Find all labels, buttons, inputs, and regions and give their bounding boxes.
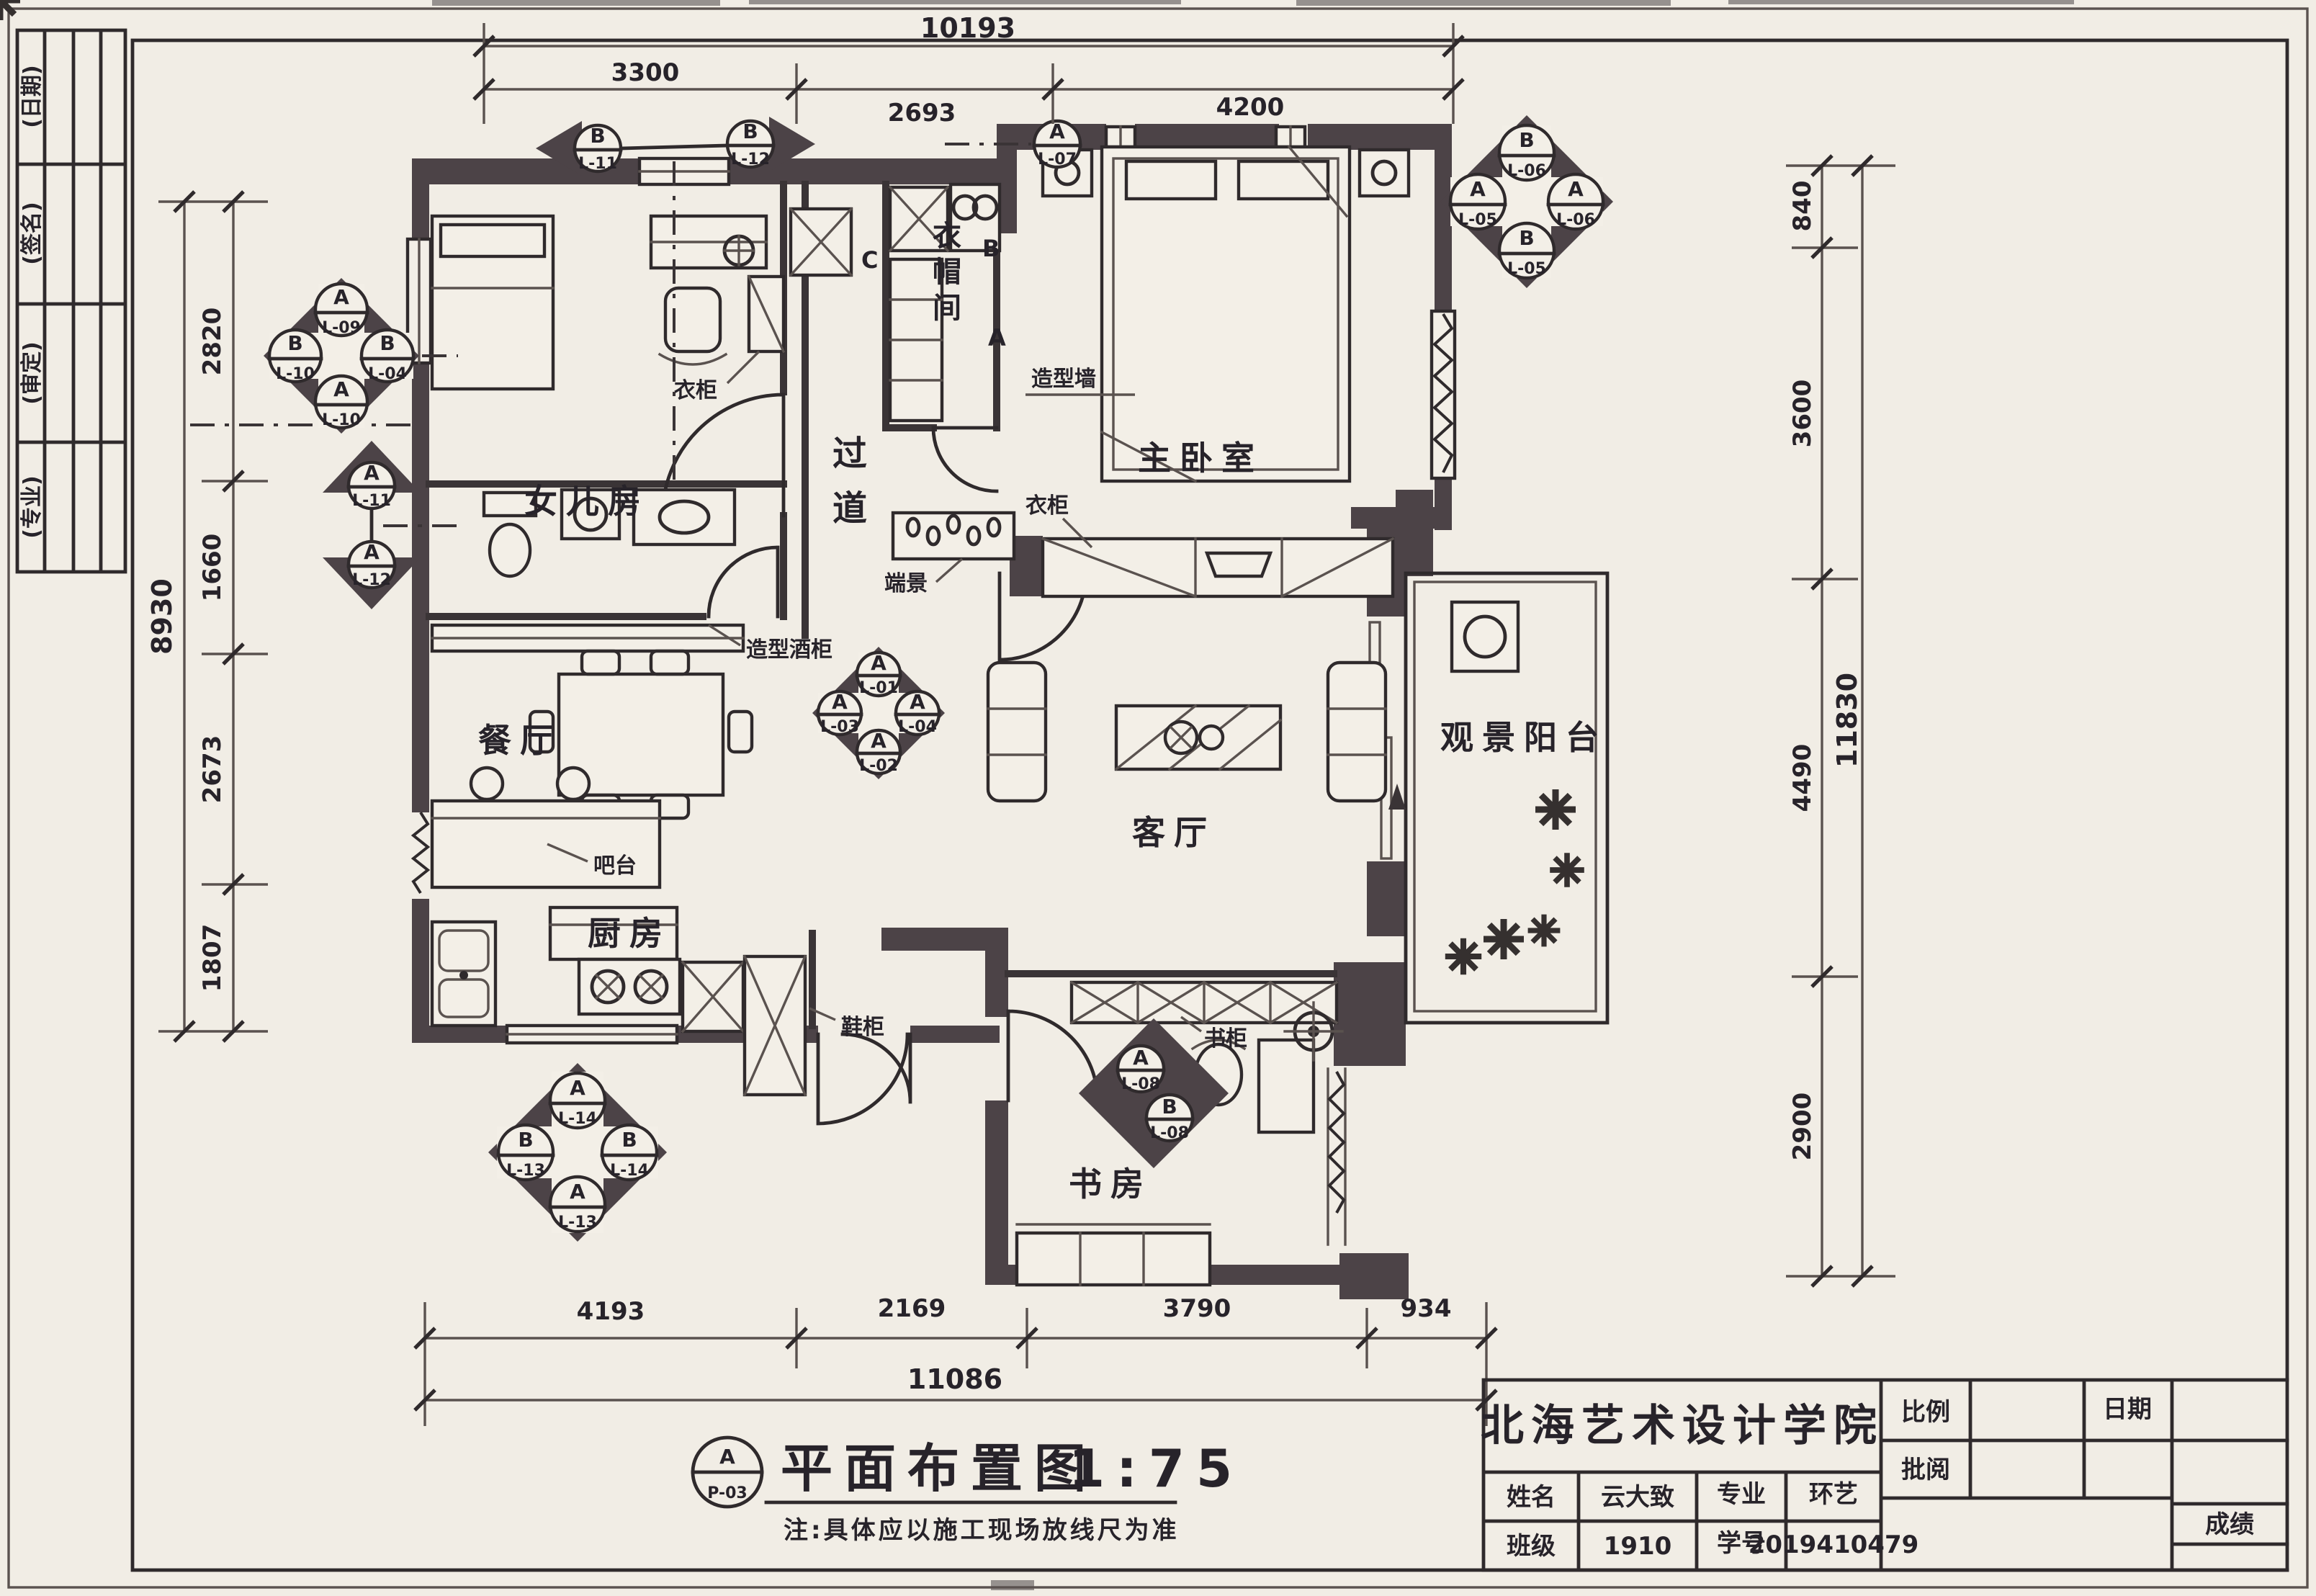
svg-text:批阅: 批阅 [1901,1456,1950,1484]
svg-text:A: A [333,285,349,309]
svg-text:L-02: L-02 [859,757,898,775]
marker-top-center: A L-07 [1034,120,1080,169]
room-dining: 餐厅 [478,721,562,760]
scanned-floor-plan-sheet: (日期) (签名) (审定) (专业) [0,0,2316,1596]
svg-text:3300: 3300 [611,58,680,87]
svg-text:专业: 专业 [1717,1480,1766,1509]
room-balcony: 观景阳台 [1440,718,1607,757]
svg-text:2169: 2169 [878,1294,946,1323]
room-living: 客厅 [1132,813,1216,852]
ann-shoe-cabinet: 鞋柜 [841,1015,884,1040]
drawing-scale: 1:75 [1069,1438,1244,1499]
ann-feature-wall: 造型墙 [1031,367,1096,392]
plant-icon [0,0,20,20]
floor-plan-drawing: (日期) (签名) (审定) (专业) [0,0,2316,1596]
svg-text:4490: 4490 [1788,744,1817,812]
svg-text:L-10: L-10 [322,411,361,429]
svg-text:L-12: L-12 [731,151,770,169]
tv-tray [1207,553,1270,576]
room-kitchen: 厨房 [588,914,671,953]
svg-text:云大致: 云大致 [1601,1483,1674,1512]
svg-text:L-05: L-05 [1507,260,1546,278]
svg-text:934: 934 [1401,1294,1452,1323]
svg-text:L-08: L-08 [1121,1075,1160,1093]
strip-row-date: (日期) [19,65,45,127]
svg-text:A: A [364,461,380,485]
svg-text:A: A [333,377,349,401]
svg-text:A: A [719,1445,735,1469]
svg-text:P-03: P-03 [707,1484,747,1502]
svg-text:A: A [1470,177,1486,201]
svg-text:4193: 4193 [577,1297,645,1326]
section-letter-b: B [982,235,1000,262]
svg-text:成绩: 成绩 [2205,1510,2254,1539]
svg-text:3600: 3600 [1788,380,1817,448]
svg-text:4200: 4200 [1216,93,1285,122]
drawing-note: 注:具体应以施工现场放线尺为准 [784,1516,1180,1545]
svg-text:2820: 2820 [198,308,227,376]
marker-cluster-center: A L-01 A L-03 A L-04 A L-02 [812,647,945,779]
svg-text:1660: 1660 [198,534,227,602]
strip-row-check: (审定) [19,341,45,404]
svg-text:L-04: L-04 [368,365,407,383]
svg-text:2019410479: 2019410479 [1749,1530,1919,1559]
svg-text:10193: 10193 [920,12,1015,44]
marker-cluster-bottom-left: A L-14 B L-13 B L-14 A L-13 [488,1063,667,1242]
svg-text:1807: 1807 [198,924,227,992]
nightstand [1360,150,1409,196]
svg-text:B: B [1162,1095,1177,1118]
svg-text:A: A [364,540,380,564]
drawing-title-group: A P-03 平面布置图 1:75 注:具体应以施工现场放线尺为准 [693,1438,1244,1545]
svg-text:班级: 班级 [1507,1532,1556,1561]
ann-wardrobe-master: 衣柜 [1025,493,1069,519]
daughter-room-furniture [432,209,851,389]
svg-text:比例: 比例 [1901,1398,1950,1427]
svg-text:L-13: L-13 [506,1162,545,1180]
ann-bookcase: 书柜 [1204,1026,1247,1052]
svg-text:B: B [621,1128,637,1152]
svg-text:2900: 2900 [1788,1093,1817,1161]
svg-text:环艺: 环艺 [1809,1480,1858,1509]
svg-text:11830: 11830 [1831,673,1863,768]
svg-text:8930: 8930 [146,578,178,655]
study-desk [1259,1040,1314,1132]
svg-text:B: B [1519,128,1534,152]
svg-text:3790: 3790 [1163,1294,1231,1323]
svg-text:L-06: L-06 [1507,162,1546,180]
room-master: 主卧室 [1138,439,1263,478]
spring-window-kitchen [413,812,428,893]
room-study: 书房 [1069,1165,1152,1203]
svg-text:L-11: L-11 [578,155,617,173]
ann-bar: 吧台 [593,853,637,879]
svg-text:A: A [1568,177,1584,201]
svg-text:B: B [1519,226,1534,250]
svg-text:L-05: L-05 [1458,211,1497,229]
strip-row-major: (专业) [19,475,45,538]
svg-text:日期: 日期 [2103,1395,2152,1424]
svg-text:A: A [910,690,925,714]
svg-text:L-14: L-14 [610,1162,649,1180]
svg-text:2673: 2673 [198,735,227,804]
svg-text:L-04: L-04 [898,718,937,736]
room-daughter: 女儿房 [524,482,650,521]
svg-text:L-13: L-13 [558,1214,597,1232]
end-view-cabinet [893,513,1014,559]
svg-text:B: B [590,124,605,148]
svg-text:A: A [832,690,848,714]
bar-stool [557,768,589,799]
ann-end-view: 端景 [884,571,928,596]
svg-text:A: A [1133,1046,1149,1070]
svg-text:L-14: L-14 [558,1110,597,1128]
svg-text:11086: 11086 [907,1363,1002,1395]
svg-text:L-06: L-06 [1556,211,1595,229]
revision-strip-table: (日期) (签名) (审定) (专业) [17,30,125,572]
section-letter-c: C [861,246,878,274]
svg-text:L-09: L-09 [322,319,361,337]
svg-text:L-07: L-07 [1038,151,1077,169]
svg-text:姓名: 姓名 [1507,1483,1556,1512]
study-sofa [1017,1233,1210,1285]
marker-cluster-top-left: A L-09 B L-10 B L-04 A L-10 [264,278,419,434]
master-bedroom-furniture [1043,147,1409,596]
svg-text:2693: 2693 [888,99,956,127]
svg-text:A: A [570,1076,585,1100]
title-block: 北海艺术设计学院 比例 日期 批阅 成绩 姓名 云大致 专业 环艺 班级 191… [1481,1380,2287,1570]
spring-window-study [1329,1072,1344,1213]
ann-wardrobe-daughter: 衣柜 [674,378,717,403]
ceiling-symbol-icon [724,236,753,265]
svg-text:B: B [518,1128,533,1152]
svg-text:B: B [287,331,302,355]
room-corridor: 过道 [821,435,871,544]
svg-text:A: A [570,1180,585,1203]
room-cloakroom: 衣帽间 [923,220,965,328]
bar-stool [471,768,503,799]
svg-text:L-03: L-03 [820,718,859,736]
svg-text:L-12: L-12 [352,571,391,589]
school-name: 北海艺术设计学院 [1481,1401,1884,1451]
sofa [988,663,1046,801]
ann-wine-cabinet: 造型酒柜 [746,637,832,663]
strip-row-sign: (签名) [19,202,45,264]
svg-text:L-08: L-08 [1150,1124,1189,1142]
marker-cluster-top-right: B L-06 A L-05 A L-06 B L-05 [1440,115,1613,288]
svg-text:L-01: L-01 [859,679,898,697]
section-letter-a: A [988,324,1006,351]
drawing-title: 平面布置图 [781,1438,1098,1499]
svg-text:L-10: L-10 [276,365,315,383]
washing-machine [1452,602,1518,671]
svg-text:1910: 1910 [1604,1532,1672,1561]
svg-text:B: B [742,120,758,143]
svg-text:A: A [871,729,887,753]
sofa [1328,663,1386,801]
stove [579,959,680,1014]
svg-text:B: B [380,331,395,355]
living-room-furniture [988,663,1386,801]
svg-text:A: A [871,651,887,675]
toilet-bowl [490,524,530,576]
svg-text:L-11: L-11 [352,492,391,510]
svg-text:840: 840 [1788,181,1817,232]
